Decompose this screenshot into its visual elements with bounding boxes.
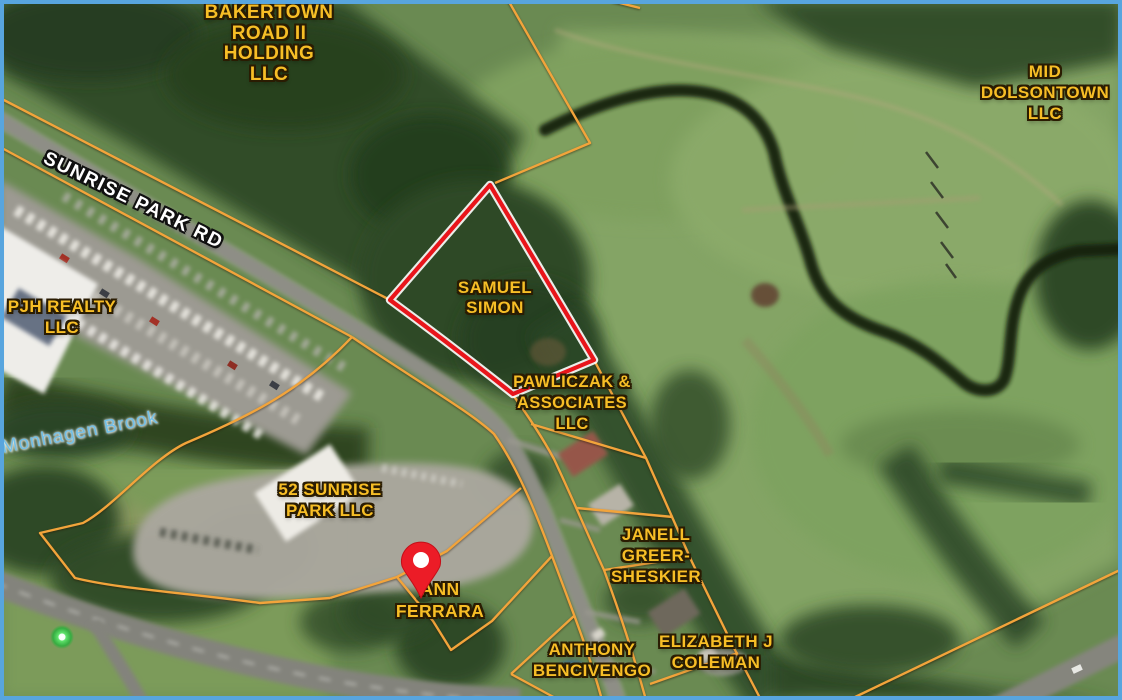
parcel-label-pjh-realty-llc[interactable]: PJH REALTYLLC [8, 297, 117, 338]
parcel-boundary-lines [0, 0, 1122, 700]
parcel-label-samuel-simon[interactable]: SAMUELSIMON [458, 278, 532, 318]
parcel-label-elizabeth-j-coleman[interactable]: ELIZABETH JCOLEMAN [659, 631, 773, 673]
parcel-label-anthony-bencivengo[interactable]: ANTHONYBENCIVENGO [533, 639, 651, 681]
parcel-label-52-sunrise-park-llc[interactable]: 52 SUNRISEPARK LLC [278, 480, 381, 521]
parcel-label-janell-greer-sheskier[interactable]: JANELLGREER-SHESKIER [611, 524, 701, 587]
parcel-label-bakertown-road-ii-holding-llc[interactable]: BAKERTOWNROAD IIHOLDINGLLC [205, 3, 334, 85]
parcel-label-pawliczak-associates-llc[interactable]: PAWLICZAK &ASSOCIATESLLC [513, 372, 631, 435]
map-canvas[interactable]: SUNRISE PARK RD Monhagen Brook BAKERTOWN… [0, 0, 1122, 700]
parcel-overlay [0, 0, 1122, 700]
parcel-label-mid-dolsontown-llc[interactable]: MIDDOLSONTOWNLLC [981, 61, 1109, 124]
parcel-label-ann-ferrara[interactable]: ANNFERRARA [396, 578, 484, 622]
